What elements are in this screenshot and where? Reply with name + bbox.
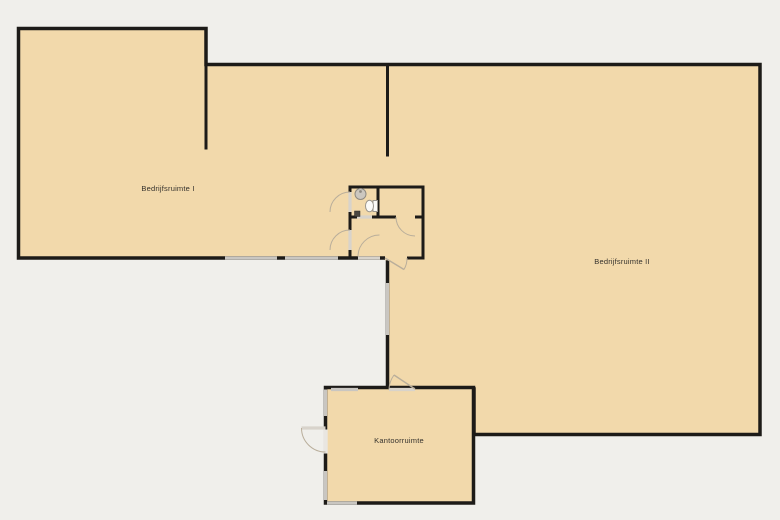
floor-plan-canvas: Bedrijfsruimte I Bedrijfsruimte II Kanto…: [0, 0, 780, 520]
toilet-icon: [366, 200, 374, 212]
label-bedrijfsruimte-2: Bedrijfsruimte II: [594, 257, 650, 266]
label-bedrijfsruimte-1: Bedrijfsruimte I: [141, 184, 194, 193]
room-kantoorruimte-outline: [326, 388, 474, 504]
floor-plan: Bedrijfsruimte I Bedrijfsruimte II Kanto…: [0, 0, 780, 520]
label-kantoorruimte: Kantoorruimte: [374, 436, 424, 445]
sink-faucet-icon: [359, 190, 362, 193]
floor-drain-icon: [355, 211, 361, 217]
